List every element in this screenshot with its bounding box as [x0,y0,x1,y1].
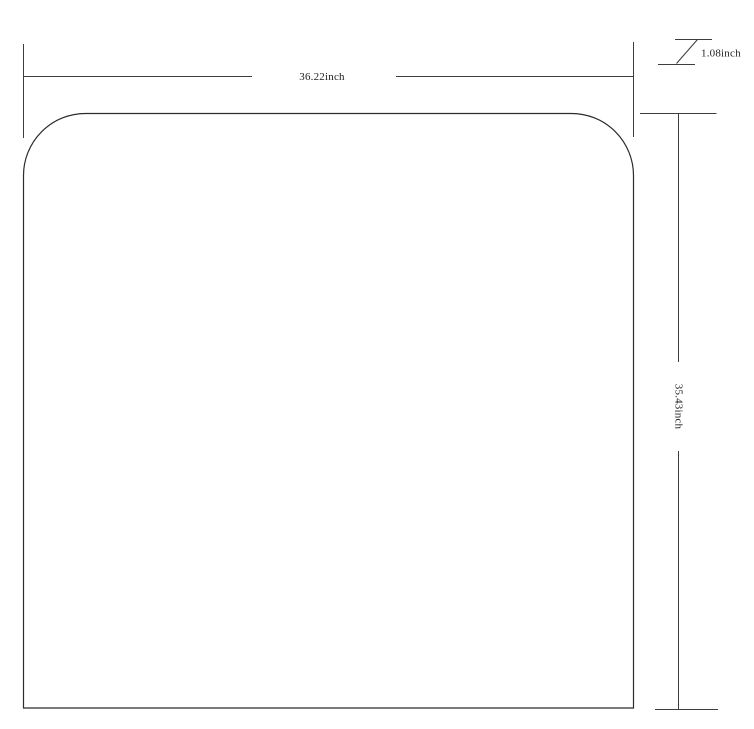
width-dimension: 36.22inch [24,42,634,138]
panel-outline [24,114,634,709]
small-dimension-oblique-stroke-icon [677,40,698,64]
small-dimension-label: 1.08inch [701,48,741,60]
height-dimension: 35.43inch [640,114,718,710]
height-dimension-label: 35.43inch [673,384,685,430]
width-dimension-label: 36.22inch [299,71,345,83]
technical-drawing: 36.22inch 1.08inch 35.43inch [0,0,754,729]
drawing-canvas: 36.22inch 1.08inch 35.43inch [0,0,754,729]
small-dimension: 1.08inch [658,40,741,65]
